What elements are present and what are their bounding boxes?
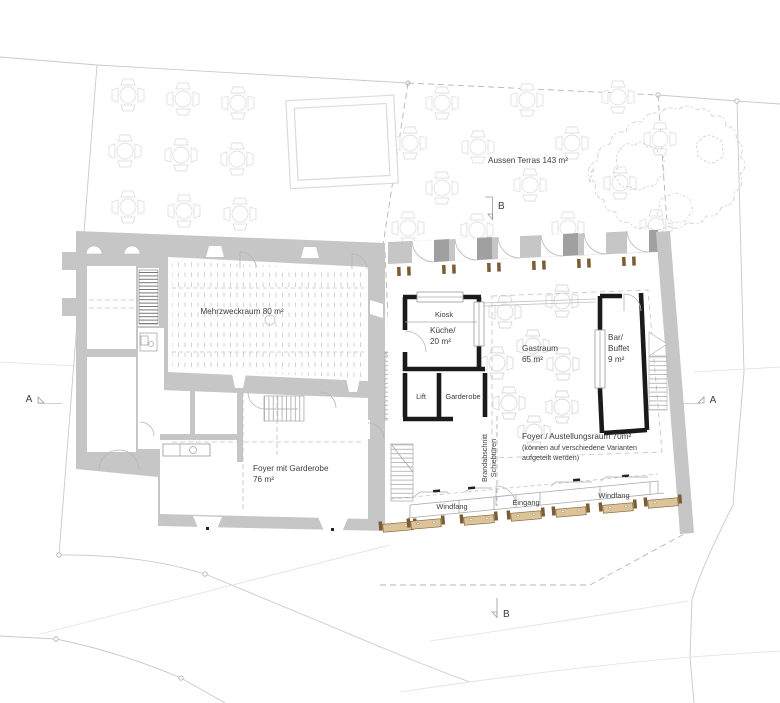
svg-text:(können auf verschiedene Varia: (können auf verschiedene Varianten	[522, 443, 637, 452]
stair-west	[139, 270, 158, 324]
floor-plan-page: Mehrzweckraum 80 m² Foyer mit Garderobe …	[0, 0, 780, 703]
window-niche	[206, 246, 224, 257]
svg-text:B: B	[503, 609, 510, 620]
right-building	[378, 230, 694, 534]
svg-text:Brandabschnitt: Brandabschnitt	[480, 434, 489, 482]
lift-label: Lift	[416, 392, 426, 401]
mehrzweckraum-label: Mehrzweckraum 80 m²	[200, 307, 284, 316]
svg-text:Buffet: Buffet	[608, 344, 630, 353]
stair-southwest	[391, 444, 413, 501]
svg-text:A: A	[26, 394, 33, 405]
svg-text:Schiebtüren: Schiebtüren	[489, 439, 498, 477]
svg-text:aufgeteilt werden): aufgeteilt werden)	[522, 453, 579, 462]
svg-text:B: B	[498, 201, 505, 212]
stair-east	[649, 356, 667, 410]
annex-room-upper	[87, 266, 136, 349]
stair-foyer	[264, 396, 304, 421]
terrace-label: Aussen Terras 143 m²	[488, 156, 568, 165]
kiosk-label: Kiosk	[435, 310, 453, 319]
floor-plan-drawing: Mehrzweckraum 80 m² Foyer mit Garderobe …	[0, 0, 780, 703]
counter	[163, 444, 210, 456]
svg-text:76 m²: 76 m²	[253, 475, 274, 484]
svg-text:20 m²: 20 m²	[430, 337, 451, 346]
svg-text:Küche/: Küche/	[430, 326, 456, 335]
eingang-label: Eingang	[512, 498, 539, 507]
svg-text:Mehrzweckraum 80 m²: Mehrzweckraum 80 m²	[200, 307, 284, 316]
annex-room-lower	[87, 357, 136, 452]
windfang-right-label: Windfang	[598, 491, 629, 500]
planter-square	[286, 95, 398, 189]
svg-text:9 m²: 9 m²	[608, 355, 625, 364]
svg-text:Foyer / Austellungsraum 70m²: Foyer / Austellungsraum 70m²	[522, 432, 631, 441]
hall-seating-rows	[172, 261, 364, 378]
windfang-left-label: Windfang	[436, 502, 467, 511]
brandabschnitt-label: Brandabschnitt Schiebtüren	[480, 434, 498, 482]
garderobe-label: Garderobe	[445, 392, 480, 401]
window-niche	[301, 247, 319, 258]
svg-text:65 m²: 65 m²	[522, 355, 543, 364]
svg-text:Gastraum: Gastraum	[522, 344, 558, 353]
svg-text:Foyer mit Garderobe: Foyer mit Garderobe	[253, 464, 329, 473]
svg-text:A: A	[710, 395, 717, 406]
svg-text:Bar/: Bar/	[608, 333, 624, 342]
